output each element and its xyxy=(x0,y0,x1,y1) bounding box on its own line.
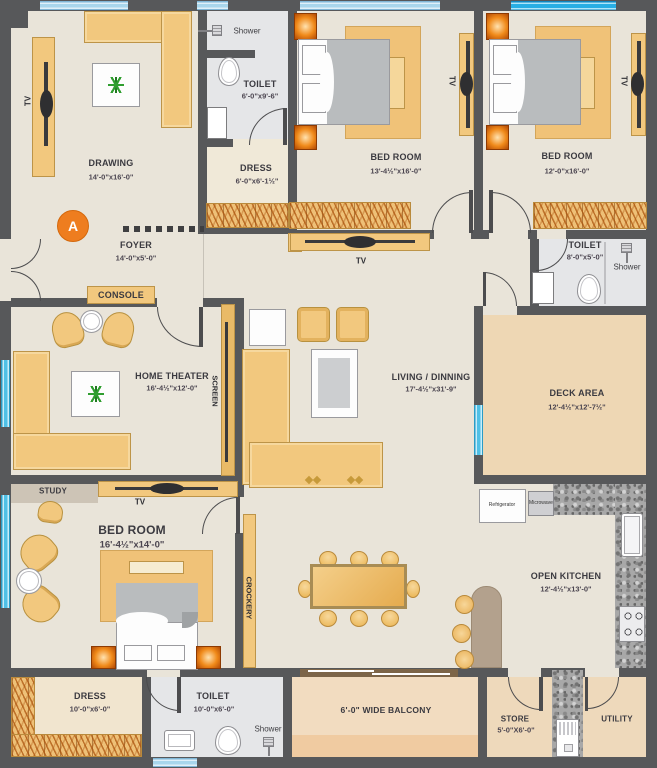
round-table xyxy=(16,568,42,594)
tv-label: TV xyxy=(24,96,33,106)
dining-chair xyxy=(350,610,368,627)
bedside-lamp xyxy=(294,13,317,40)
bed-inner xyxy=(579,57,595,109)
shower-label: Shower xyxy=(613,263,640,272)
shower-icon xyxy=(263,737,274,747)
room-dims-bedroom3: 16'-4½"x14'-0" xyxy=(100,540,165,551)
study-label: STUDY xyxy=(39,487,67,496)
room-label-deck: DECK AREA xyxy=(550,388,605,398)
bedside-lamp xyxy=(294,125,317,150)
dining-chair xyxy=(381,610,399,627)
coffee-table-glass xyxy=(318,358,350,408)
room-dims-kitchen: 12'-4½"x13'-0" xyxy=(540,585,591,594)
room-label-drawing: DRAWING xyxy=(89,158,134,168)
partition-line xyxy=(604,242,606,304)
opening-dotted-line xyxy=(123,226,204,232)
door-arc xyxy=(157,307,203,347)
window xyxy=(300,1,440,10)
shower-icon xyxy=(621,243,632,253)
room-label-living: LIVING / DINNING xyxy=(392,372,471,382)
wardrobe xyxy=(11,734,142,757)
wc-icon xyxy=(215,726,241,755)
door-leaf xyxy=(469,190,473,233)
armchair xyxy=(13,527,62,576)
room-dims-bedroom2: 12'-0"x16'-0" xyxy=(545,167,590,176)
blanket-fold xyxy=(320,52,334,112)
tv-label: TV xyxy=(620,76,629,86)
shower-icon xyxy=(198,30,212,32)
dining-table xyxy=(310,564,407,609)
console-label: CONSOLE xyxy=(98,290,144,300)
tv-label: TV xyxy=(135,498,145,507)
window xyxy=(1,360,10,427)
wall xyxy=(288,11,297,230)
stool xyxy=(452,624,471,643)
door-leaf xyxy=(207,107,227,139)
blanket xyxy=(327,40,389,124)
wardrobe xyxy=(206,203,289,228)
tv-icon xyxy=(631,72,644,96)
boundary-line xyxy=(203,234,204,298)
room-dims-dress2: 10'-0"x6'-0" xyxy=(70,705,111,714)
wall xyxy=(474,306,483,315)
wall xyxy=(474,475,657,484)
wc-icon xyxy=(218,57,240,86)
shower-label: Shower xyxy=(254,725,281,734)
tv-icon xyxy=(460,72,473,96)
stove-icon xyxy=(619,606,645,642)
pillow xyxy=(124,645,152,661)
room-label-foyer: FOYER xyxy=(120,240,152,250)
bedside-lamp xyxy=(196,646,221,669)
room-label-utility: UTILITY xyxy=(601,715,633,724)
round-table xyxy=(80,310,103,333)
wall xyxy=(566,230,657,239)
tv-icon xyxy=(40,90,53,118)
wall xyxy=(478,677,487,757)
door-arc xyxy=(483,272,517,306)
plant-icon xyxy=(88,386,104,402)
wall xyxy=(0,0,28,28)
room-label-bedroom1: BED ROOM xyxy=(370,152,421,162)
floor-balcony-edge xyxy=(292,735,478,757)
room-label-bedroom3: BED ROOM xyxy=(98,523,166,537)
sliding-door xyxy=(372,673,450,675)
room-dims-store: 5'-0"X6'-0" xyxy=(497,726,534,735)
room-dims-bedroom1: 13'-4½"x16'-0" xyxy=(370,167,421,176)
room-dims-living: 17'-4½"x31'-9" xyxy=(405,385,456,394)
sliding-door xyxy=(308,670,374,672)
bed-inner xyxy=(129,561,184,574)
bed-inner xyxy=(389,57,405,109)
room-label-balcony: 6'-0" WIDE BALCONY xyxy=(341,705,432,715)
plant-icon xyxy=(108,77,124,93)
chair xyxy=(37,499,65,524)
room-label-store: STORE xyxy=(501,715,529,724)
room-dims-toilet2: 8'-0"x5'-0" xyxy=(567,253,604,262)
door-arc xyxy=(11,239,41,269)
room-label-home-theater: HOME THEATER xyxy=(135,371,209,381)
wall xyxy=(646,0,657,768)
room-dims-toilet3: 10'-0"x6'-0" xyxy=(194,705,235,714)
wall xyxy=(0,757,657,768)
window xyxy=(511,1,616,10)
refrigerator-label: Refrigerator xyxy=(489,502,515,508)
window xyxy=(474,405,483,455)
door-arc xyxy=(491,192,531,233)
sofa xyxy=(13,433,131,470)
blanket xyxy=(518,40,580,124)
door-leaf xyxy=(283,108,287,145)
door-arc xyxy=(11,271,41,301)
room-label-toilet1: TOILET xyxy=(243,79,276,89)
room-dims-deck: 12'-4½"x12'-7½" xyxy=(548,403,605,412)
breakfast-counter xyxy=(471,586,502,668)
room-dims-drawing: 14'-0"x16'-0" xyxy=(89,173,134,182)
tv-icon xyxy=(150,483,184,494)
wardrobe xyxy=(289,202,411,229)
shower-label: Shower xyxy=(233,27,260,36)
door-leaf xyxy=(539,677,543,711)
window xyxy=(197,1,228,10)
screen-label: SCREEN xyxy=(211,375,220,406)
room-dims-foyer: 14'-0"x5'-0" xyxy=(116,254,157,263)
washbasin xyxy=(164,730,195,751)
room-label-toilet2: TOILET xyxy=(568,240,601,250)
blanket-fold xyxy=(116,612,168,630)
door-leaf xyxy=(489,190,493,233)
bedside-lamp xyxy=(486,13,509,40)
door-leaf xyxy=(483,272,486,306)
washing-machine-icon xyxy=(556,719,579,757)
room-label-toilet3: TOILET xyxy=(196,691,229,701)
crockery-label: CROCKERY xyxy=(245,577,254,620)
wall xyxy=(517,306,657,315)
wall xyxy=(458,668,508,677)
room-label-kitchen: OPEN KITCHEN xyxy=(531,571,601,581)
window xyxy=(40,1,128,10)
door-leaf xyxy=(585,677,588,711)
room-label-bedroom2: BED ROOM xyxy=(541,151,592,161)
screen-unit xyxy=(221,304,235,476)
door-arc xyxy=(202,497,238,534)
marker-a: A xyxy=(57,210,89,242)
dining-chair xyxy=(406,580,420,598)
room-dims-toilet1: 6'-0"x9'-6" xyxy=(242,92,279,101)
wall xyxy=(283,677,292,757)
blanket-fold xyxy=(511,52,525,112)
door-leaf xyxy=(199,307,203,347)
door-leaf xyxy=(236,496,240,534)
tv-label: TV xyxy=(448,76,457,86)
armchair xyxy=(99,309,138,350)
microwave-label: Microwave xyxy=(529,500,553,506)
sofa xyxy=(161,11,192,128)
pillow xyxy=(157,645,185,661)
side-table xyxy=(249,309,286,346)
bedside-lamp xyxy=(486,125,509,150)
shower-icon xyxy=(212,25,222,36)
shower-icon xyxy=(626,253,628,263)
screen-icon xyxy=(225,322,228,462)
wall xyxy=(207,139,233,147)
door-leaf xyxy=(177,677,181,713)
dining-chair xyxy=(319,610,337,627)
floor-plan: TV DRAWING 14'-0"x16'-0" A Shower TOILET… xyxy=(0,0,657,768)
wardrobe xyxy=(533,202,647,229)
door-leaf xyxy=(532,272,554,304)
window xyxy=(153,758,197,767)
door-arc xyxy=(432,192,472,233)
wall xyxy=(180,668,300,677)
room-dims-home-theater: 16'-4½"x12'-0" xyxy=(146,384,197,393)
sink-icon xyxy=(621,513,643,557)
tv-icon xyxy=(344,236,376,248)
room-dims-dress1: 6'-0"x6'-1½" xyxy=(236,177,279,186)
stool xyxy=(455,650,474,669)
armchair xyxy=(336,307,369,342)
tv-label: TV xyxy=(356,257,366,266)
bedside-lamp xyxy=(91,646,116,669)
stool xyxy=(455,595,474,614)
armchair xyxy=(297,307,330,342)
shower-icon xyxy=(268,747,270,756)
wall xyxy=(474,11,483,230)
wall xyxy=(198,11,207,225)
wall xyxy=(619,668,657,677)
wc-icon xyxy=(577,274,601,304)
entry-opening xyxy=(0,239,11,301)
room-label-dress2: DRESS xyxy=(74,691,106,701)
window xyxy=(1,495,10,608)
room-label-dress1: DRESS xyxy=(240,163,272,173)
